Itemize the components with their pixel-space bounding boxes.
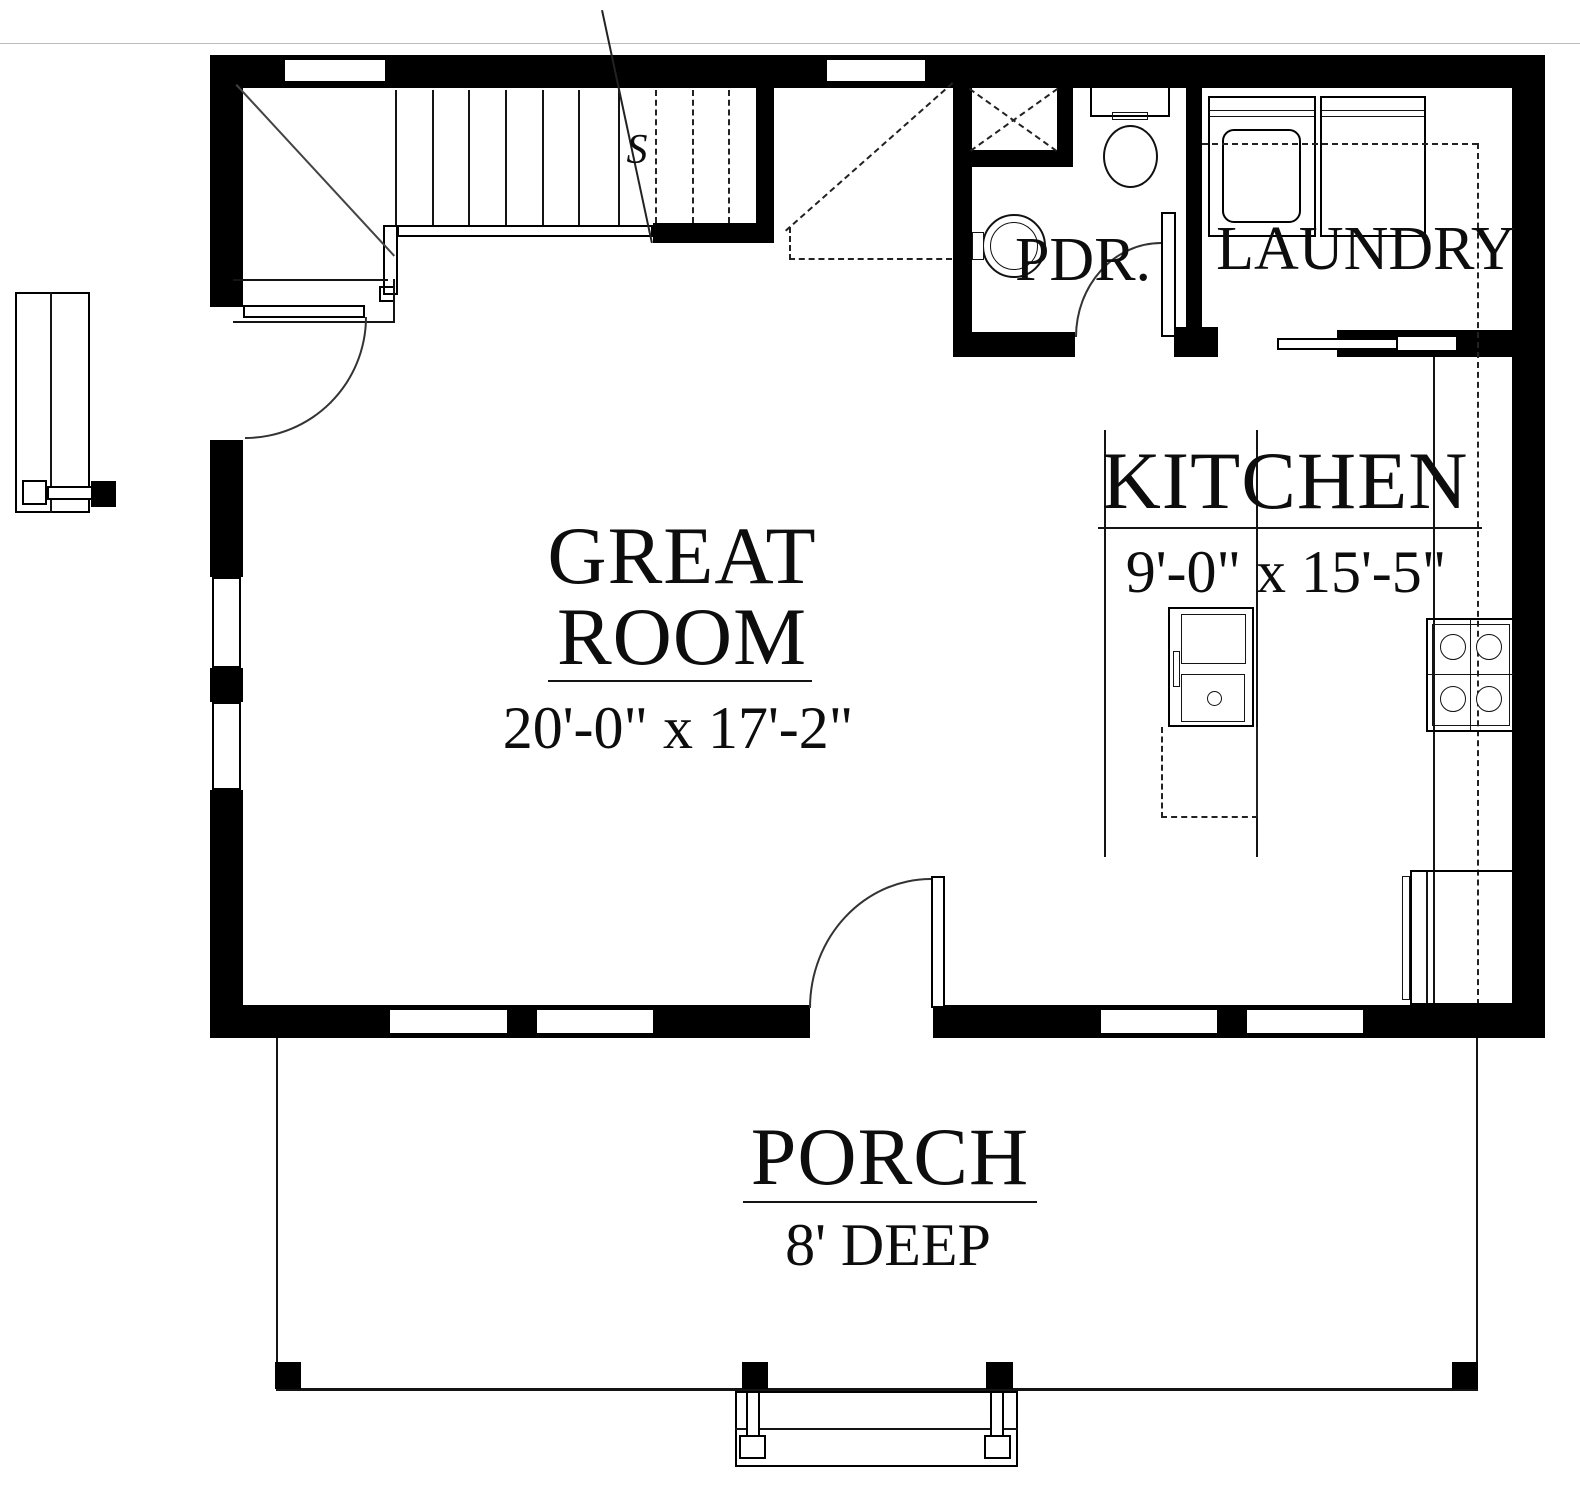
stove-burner (1476, 686, 1502, 712)
stair-break-symbol: S (627, 129, 648, 171)
window-bottom-3 (1101, 1008, 1217, 1035)
scan-artifact-line (0, 43, 1580, 44)
stair-landing-line (233, 279, 388, 281)
stair-tread-line (395, 90, 397, 225)
refrigerator-top-compartment (1181, 614, 1246, 664)
pdr-wall-bottom (953, 332, 1075, 357)
steps-newel-right (984, 1435, 1011, 1459)
porch-edge-left (276, 1038, 278, 1390)
chase-wall-right (1057, 88, 1073, 150)
wall-left-upper (210, 55, 243, 307)
toilet-icon (1103, 125, 1158, 188)
water-heater-connector (972, 232, 984, 260)
kitchen-label: KITCHEN (1102, 440, 1469, 522)
porch-label: PORCH (751, 1116, 1029, 1198)
stair-landing-edge (393, 279, 395, 323)
upper-cabinet-dashed-line (1202, 143, 1478, 147)
base-cabinet-side-panel (1402, 876, 1410, 1000)
refrigerator-handle (1173, 651, 1180, 687)
dryer-panel-line (1322, 116, 1424, 117)
stoop-divider-line (50, 292, 52, 513)
stair-tread-line-hidden (728, 90, 732, 223)
porch-post (275, 1362, 301, 1389)
chase-wall-left (953, 88, 972, 357)
stair-tread-line (618, 90, 620, 225)
porch-edge-right (1476, 1038, 1478, 1390)
stair-tread-line (468, 90, 470, 225)
dryer-panel-line (1322, 110, 1424, 111)
porch-post (986, 1362, 1013, 1389)
wall-left-mullion (210, 668, 243, 702)
dishwasher-dashed-outline (1161, 727, 1258, 818)
stair-above-dashed-vertical (789, 227, 793, 260)
great-room-label-line2: ROOM (557, 596, 807, 678)
wall-left-mid (210, 440, 243, 577)
chase-wall-bottom (953, 150, 1073, 167)
stair-tread-line (578, 90, 580, 225)
window-top-center (825, 58, 927, 83)
stair-wall-right (756, 88, 774, 243)
stoop-rail (47, 486, 93, 500)
window-left-upper (212, 577, 241, 668)
pdr-laundry-wall (1186, 88, 1202, 332)
refrigerator-dispenser (1207, 691, 1222, 706)
steps-newel-left (739, 1435, 766, 1459)
stair-tread-line-hidden (692, 90, 696, 223)
window-bottom-4 (1247, 1008, 1363, 1035)
great-room-underline (548, 680, 812, 682)
stair-handrail-return (383, 225, 398, 295)
porch-door-opening (810, 1005, 933, 1038)
stair-above-dashed-horizontal (789, 258, 952, 262)
powder-room-label: PDR. (1015, 229, 1151, 291)
washer-panel-line (1210, 110, 1314, 111)
stair-tread-line (432, 90, 434, 225)
porch-post (1452, 1362, 1478, 1389)
wall-left-lower (210, 790, 243, 1038)
porch-step-line (735, 1428, 1018, 1430)
washer-panel-line (1210, 116, 1314, 117)
stair-wall-bottom (653, 223, 774, 243)
laundry-pocket-door-slot (1398, 337, 1456, 350)
steps-rail-right (990, 1391, 1004, 1437)
great-room-label-line1: GREAT (547, 515, 816, 597)
stair-above-dashed-diagonal (785, 82, 953, 231)
stove-burner (1476, 634, 1502, 660)
window-bottom-1 (390, 1008, 507, 1035)
understair-diagonal-line (236, 84, 395, 257)
stove-grate-line (1428, 674, 1514, 675)
porch-depth-label: 8' DEEP (785, 1215, 991, 1275)
stoop-newel-post (22, 480, 47, 505)
stoop-post (91, 481, 116, 507)
laundry-label: LAUNDRY (1216, 218, 1516, 280)
stove-grate-line (1470, 620, 1471, 730)
stove-burner (1440, 686, 1466, 712)
stair-tread-line (542, 90, 544, 225)
pdr-corner-stub (1174, 327, 1218, 357)
stair-tread-line-hidden (655, 90, 659, 223)
laundry-pocket-door-panel (1277, 338, 1398, 350)
pdr-sink-basin (1112, 112, 1148, 120)
porch-door-swing-arc (809, 878, 931, 1008)
porch-underline (743, 1201, 1037, 1203)
front-door-swing-arc (245, 317, 367, 439)
base-cabinet-door-line (1426, 872, 1428, 1003)
pdr-door-leaf (1161, 212, 1176, 337)
window-bottom-2 (537, 1008, 653, 1035)
front-door-opening (210, 307, 243, 440)
steps-rail-left (746, 1391, 760, 1437)
stair-tread-line (505, 90, 507, 225)
window-top-left (283, 58, 387, 83)
stair-handrail (397, 225, 653, 237)
great-room-dimensions: 20'-0" x 17'-2" (503, 698, 854, 758)
kitchen-dimensions: 9'-0" x 15'-5" (1126, 542, 1447, 602)
stove-burner (1440, 634, 1466, 660)
porch-door-leaf (931, 876, 945, 1008)
floor-plan-canvas: S (0, 0, 1580, 1504)
kitchen-title-underline (1098, 527, 1482, 529)
window-left-lower (212, 702, 241, 790)
porch-post (742, 1362, 768, 1389)
